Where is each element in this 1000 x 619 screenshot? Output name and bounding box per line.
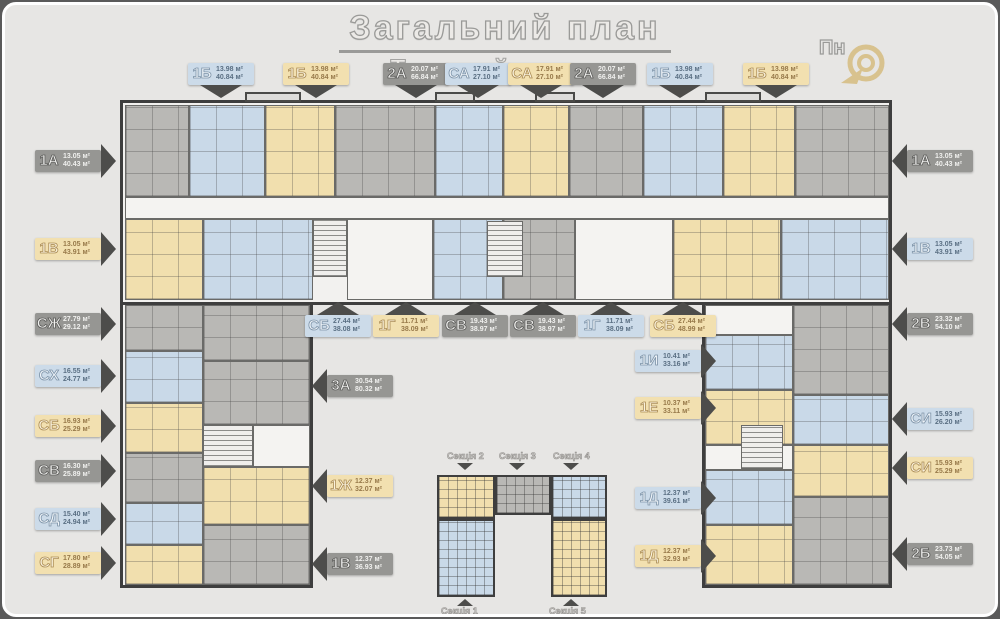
room xyxy=(203,525,310,585)
room xyxy=(125,503,203,545)
apartment-area1: 15.93 м² xyxy=(935,411,962,419)
stairs xyxy=(487,221,523,277)
apartment-area2: 38.97 м² xyxy=(470,326,497,334)
apartment-code: СД xyxy=(35,508,63,530)
apartment-area1: 19.43 м² xyxy=(538,318,565,326)
apartment-area1: 17.80 м² xyxy=(63,555,90,563)
apartment-code: 1И xyxy=(635,350,663,372)
apartment-code: 1Б xyxy=(188,63,216,85)
room xyxy=(125,219,203,300)
apartment-tag-2v: 2В23.32 м²54.10 м² xyxy=(907,313,973,335)
apartment-code: СБ xyxy=(305,315,333,337)
apartment-tag-1b: 1Б13.98 м²40.84 м² xyxy=(743,63,809,85)
section-5-block xyxy=(551,519,607,597)
apartment-tag-1a: 1А13.05 м²40.43 м² xyxy=(35,150,101,172)
apartment-tag-sg: СГ17.80 м²28.89 м² xyxy=(35,552,101,574)
room xyxy=(793,395,889,445)
arrow-down-icon xyxy=(457,463,473,470)
section-1-block xyxy=(437,519,495,597)
apartment-tag-skh: СХ16.55 м²24.77 м² xyxy=(35,365,101,387)
apartment-code: 1Г xyxy=(373,315,401,337)
north-spiral-arrow-icon xyxy=(837,41,889,93)
apartment-code: СВ xyxy=(510,315,538,337)
apartment-tag-sv: СВ19.43 м²38.97 м² xyxy=(510,315,576,337)
arrow-up-icon xyxy=(457,599,473,606)
apartment-tag-sv: СВ16.30 м²25.89 м² xyxy=(35,460,101,482)
apartment-area1: 16.55 м² xyxy=(63,368,90,376)
apartment-area2: 27.10 м² xyxy=(473,74,500,82)
apartment-area2: 39.61 м² xyxy=(663,498,690,506)
apartment-area1: 13.98 м² xyxy=(771,66,798,74)
apartment-area1: 11.71 м² xyxy=(606,318,633,326)
apartment-code: 1В xyxy=(327,553,355,575)
section-key-map: Секція 2 Секція 3 Секція 4 Секція 1 Секц… xyxy=(429,451,611,613)
apartment-tag-1a: 1А13.05 м²40.43 м² xyxy=(907,150,973,172)
apartment-area2: 33.16 м² xyxy=(663,361,690,369)
room xyxy=(435,105,503,197)
apartment-area2: 28.89 м² xyxy=(63,563,90,571)
apartment-area2: 29.12 м² xyxy=(63,324,90,332)
room xyxy=(335,105,435,197)
apartment-area2: 32.93 м² xyxy=(663,556,690,564)
room xyxy=(705,335,793,390)
apartment-tag-szh: СЖ27.79 м²29.12 м² xyxy=(35,313,101,335)
apartment-area1: 11.71 м² xyxy=(401,318,428,326)
section-4-block xyxy=(551,475,607,519)
apartment-code: 2А xyxy=(383,63,411,85)
room xyxy=(569,105,643,197)
arrow-down-icon xyxy=(509,463,525,470)
apartment-tag-1g: 1Г11.71 м²38.09 м² xyxy=(373,315,439,337)
apartment-area2: 80.32 м² xyxy=(355,386,382,394)
apartment-area2: 40.84 м² xyxy=(311,74,338,82)
apartment-area1: 13.05 м² xyxy=(935,153,962,161)
apartment-code: 1Б xyxy=(743,63,771,85)
apartment-area2: 26.20 м² xyxy=(935,419,962,427)
apartment-area1: 12.37 м² xyxy=(663,548,690,556)
apartment-area2: 43.91 м² xyxy=(63,249,90,257)
apartment-area2: 36.93 м² xyxy=(355,564,382,572)
apartment-code: 1В xyxy=(907,238,935,260)
apartment-code: СХ xyxy=(35,365,63,387)
apartment-area2: 25.29 м² xyxy=(935,468,962,476)
apartment-tag-sv: СВ19.43 м²38.97 м² xyxy=(442,315,508,337)
apartment-area2: 66.84 м² xyxy=(411,74,438,82)
corridor xyxy=(253,425,310,467)
apartment-tag-1i: 1И10.41 м²33.16 м² xyxy=(635,350,701,372)
apartment-code: 1Ж xyxy=(327,475,355,497)
corridor xyxy=(705,305,793,335)
apartment-area1: 20.07 м² xyxy=(411,66,438,74)
balcony xyxy=(245,92,301,102)
apartment-area2: 48.99 м² xyxy=(678,326,705,334)
apartment-tag-1b: 1Б13.98 м²40.84 м² xyxy=(647,63,713,85)
apartment-code: СБ xyxy=(35,415,63,437)
apartment-area1: 13.05 м² xyxy=(63,153,90,161)
room xyxy=(705,470,793,525)
plan-sheet: Загальний план Типовий поверх Пн xyxy=(2,2,998,617)
apartment-code: 2Б xyxy=(907,543,935,565)
apartment-area1: 16.93 м² xyxy=(63,418,90,426)
section-label-2: Секція 2 xyxy=(447,451,484,461)
apartment-code: 1Г xyxy=(578,315,606,337)
room xyxy=(705,525,793,585)
apartment-area2: 40.84 м² xyxy=(216,74,243,82)
compass: Пн xyxy=(805,31,895,95)
apartment-area1: 13.05 м² xyxy=(63,241,90,249)
apartment-area2: 38.09 м² xyxy=(401,326,428,334)
stairs xyxy=(203,425,253,467)
apartment-code: 1А xyxy=(907,150,935,172)
apartment-area1: 12.37 м² xyxy=(355,478,382,486)
arrow-up-icon xyxy=(563,599,579,606)
section-3-block xyxy=(495,475,551,515)
apartment-tag-sa: СА17.91 м²27.10 м² xyxy=(445,63,511,85)
apartment-tag-2a: 2А20.07 м²66.84 м² xyxy=(570,63,636,85)
apartment-code: СГ xyxy=(35,552,63,574)
apartment-tag-1zh: 1Ж12.37 м²32.07 м² xyxy=(327,475,393,497)
apartment-area2: 33.11 м² xyxy=(663,408,690,416)
apartment-area2: 43.91 м² xyxy=(935,249,962,257)
apartment-tag-1b: 1Б13.98 м²40.84 м² xyxy=(188,63,254,85)
apartment-code: СЖ xyxy=(35,313,63,335)
apartment-code: СВ xyxy=(442,315,470,337)
apartment-code: 2В xyxy=(907,313,935,335)
apartment-code: 2А xyxy=(570,63,598,85)
apartment-tag-1g: 1Г11.71 м²38.09 м² xyxy=(578,315,644,337)
apartment-area1: 27.79 м² xyxy=(63,316,90,324)
room xyxy=(795,105,889,197)
arrow-down-icon xyxy=(563,463,579,470)
section-label-1: Секція 1 xyxy=(441,606,478,616)
apartment-code: 1Д xyxy=(635,487,663,509)
apartment-code: 1Д xyxy=(635,545,663,567)
apartment-area2: 40.84 м² xyxy=(771,74,798,82)
apartment-tag-1v: 1В13.05 м²43.91 м² xyxy=(35,238,101,260)
room xyxy=(203,467,310,525)
corridor xyxy=(125,197,889,219)
apartment-area1: 27.44 м² xyxy=(333,318,360,326)
corridor xyxy=(347,219,433,300)
room xyxy=(125,403,203,453)
apartment-area2: 66.84 м² xyxy=(598,74,625,82)
room xyxy=(265,105,335,197)
room xyxy=(723,105,795,197)
apartment-area2: 38.09 м² xyxy=(606,326,633,334)
apartment-area1: 17.91 м² xyxy=(473,66,500,74)
apartment-tag-sa: СА17.91 м²27.10 м² xyxy=(508,63,574,85)
apartment-area2: 24.77 м² xyxy=(63,376,90,384)
apartment-code: СА xyxy=(508,63,536,85)
apartment-code: 1Б xyxy=(283,63,311,85)
apartment-tag-1b: 1Б13.98 м²40.84 м² xyxy=(283,63,349,85)
apartment-area1: 23.73 м² xyxy=(935,546,962,554)
apartment-tag-2a: 2А20.07 м²66.84 м² xyxy=(383,63,449,85)
apartment-area2: 40.43 м² xyxy=(935,161,962,169)
section-label-4: Секція 4 xyxy=(553,451,590,461)
section-label-5: Секція 5 xyxy=(549,606,586,616)
apartment-code: СБ xyxy=(650,315,678,337)
apartment-area1: 20.07 м² xyxy=(598,66,625,74)
room xyxy=(643,105,723,197)
apartment-area1: 13.98 м² xyxy=(675,66,702,74)
room xyxy=(793,305,889,395)
room xyxy=(793,497,889,585)
room xyxy=(203,361,310,425)
apartment-tag-1d: 1Д12.37 м²39.61 м² xyxy=(635,487,701,509)
apartment-area1: 19.43 м² xyxy=(470,318,497,326)
apartment-area2: 24.94 м² xyxy=(63,519,90,527)
apartment-area1: 27.44 м² xyxy=(678,318,705,326)
title-main: Загальний план xyxy=(339,9,670,53)
apartment-area2: 40.43 м² xyxy=(63,161,90,169)
apartment-area2: 54.05 м² xyxy=(935,554,962,562)
room xyxy=(203,305,310,361)
room xyxy=(125,305,203,351)
apartment-area2: 54.10 м² xyxy=(935,324,962,332)
section-2-block xyxy=(437,475,495,519)
room xyxy=(125,351,203,403)
apartment-area1: 12.37 м² xyxy=(663,490,690,498)
room xyxy=(125,545,203,585)
apartment-code: 3А xyxy=(327,375,355,397)
apartment-tag-sb: СБ27.44 м²48.99 м² xyxy=(650,315,716,337)
apartment-area2: 40.84 м² xyxy=(675,74,702,82)
room xyxy=(503,105,569,197)
apartment-area1: 15.93 м² xyxy=(935,460,962,468)
apartment-area1: 23.32 м² xyxy=(935,316,962,324)
apartment-area2: 38.97 м² xyxy=(538,326,565,334)
apartment-tag-sb: СБ27.44 м²38.08 м² xyxy=(305,315,371,337)
room xyxy=(673,219,781,300)
apartment-area1: 10.41 м² xyxy=(663,353,690,361)
apartment-code: 1Е xyxy=(635,397,663,419)
room xyxy=(125,453,203,503)
apartment-area2: 38.08 м² xyxy=(333,326,360,334)
stairs xyxy=(741,425,783,469)
apartment-tag-3a: 3А30.54 м²80.32 м² xyxy=(327,375,393,397)
room xyxy=(125,105,189,197)
apartment-code: СВ xyxy=(35,460,63,482)
apartment-code: СИ xyxy=(907,408,935,430)
apartment-code: СИ xyxy=(907,457,935,479)
balcony xyxy=(705,92,761,102)
apartment-area2: 25.89 м² xyxy=(63,471,90,479)
section-label-3: Секція 3 xyxy=(499,451,536,461)
apartment-area1: 12.37 м² xyxy=(355,556,382,564)
apartment-tag-si: СИ15.93 м²26.20 м² xyxy=(907,408,973,430)
apartment-code: 1Б xyxy=(647,63,675,85)
apartment-tag-1e: 1Е10.37 м²33.11 м² xyxy=(635,397,701,419)
apartment-code: СА xyxy=(445,63,473,85)
apartment-area2: 25.29 м² xyxy=(63,426,90,434)
apartment-area2: 27.10 м² xyxy=(536,74,563,82)
apartment-area1: 15.40 м² xyxy=(63,511,90,519)
apartment-tag-si: СИ15.93 м²25.29 м² xyxy=(907,457,973,479)
apartment-tag-1v: 1В13.05 м²43.91 м² xyxy=(907,238,973,260)
apartment-tag-1d: 1Д12.37 м²32.93 м² xyxy=(635,545,701,567)
corridor xyxy=(575,219,673,300)
apartment-area1: 30.54 м² xyxy=(355,378,382,386)
apartment-area2: 32.07 м² xyxy=(355,486,382,494)
apartment-area1: 13.98 м² xyxy=(311,66,338,74)
apartment-code: 1А xyxy=(35,150,63,172)
apartment-tag-1v: 1В12.37 м²36.93 м² xyxy=(327,553,393,575)
apartment-code: 1В xyxy=(35,238,63,260)
apartment-area1: 10.37 м² xyxy=(663,400,690,408)
room xyxy=(793,445,889,497)
apartment-tag-2b: 2Б23.73 м²54.05 м² xyxy=(907,543,973,565)
stairs xyxy=(313,219,347,277)
room xyxy=(203,219,313,300)
apartment-area1: 16.30 м² xyxy=(63,463,90,471)
apartment-area1: 13.05 м² xyxy=(935,241,962,249)
apartment-tag-sb: СБ16.93 м²25.29 м² xyxy=(35,415,101,437)
apartment-area1: 17.91 м² xyxy=(536,66,563,74)
room xyxy=(781,219,889,300)
room xyxy=(189,105,265,197)
apartment-tag-sd: СД15.40 м²24.94 м² xyxy=(35,508,101,530)
apartment-area1: 13.98 м² xyxy=(216,66,243,74)
